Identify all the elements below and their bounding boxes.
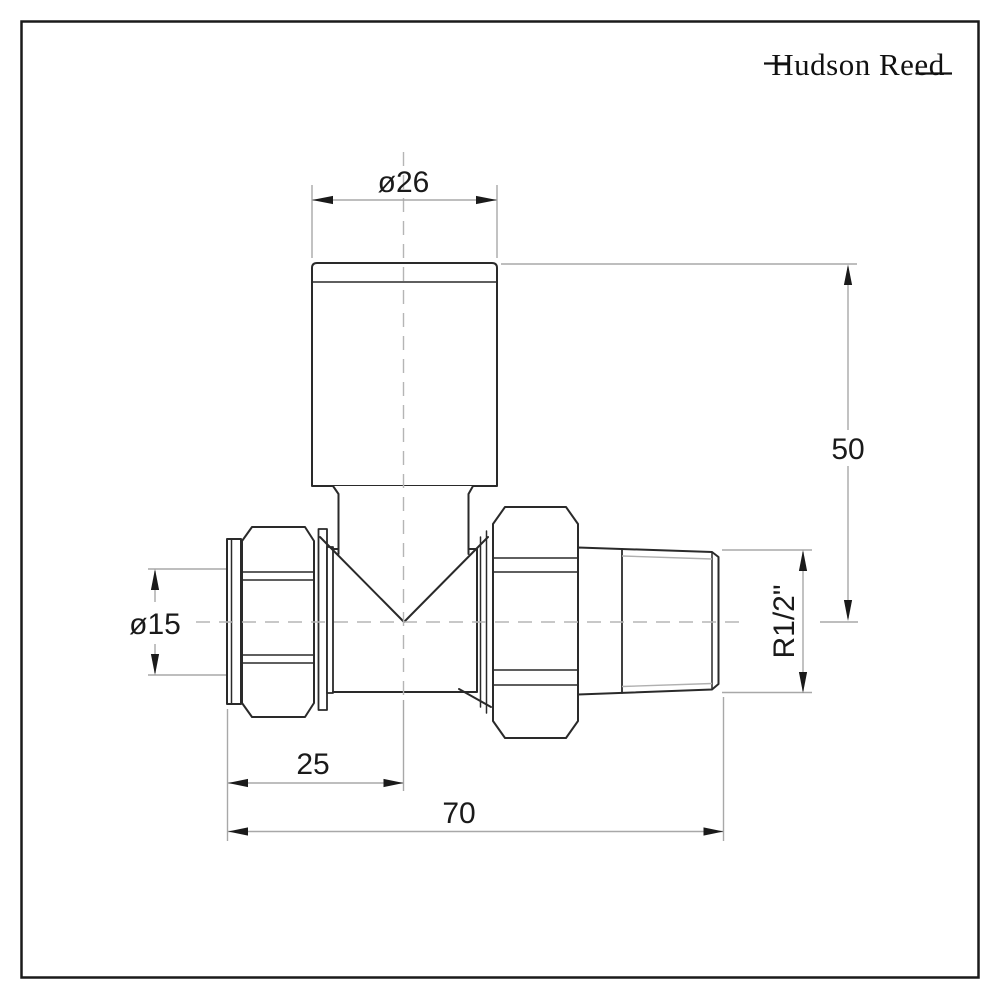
dimension-label: ø26 bbox=[378, 166, 430, 199]
arrowhead-top bbox=[151, 569, 159, 590]
dimension-label: R1/2" bbox=[768, 584, 801, 658]
dimension-label: 25 bbox=[296, 748, 329, 781]
body-flange-ring bbox=[327, 547, 333, 693]
arrowhead-bottom bbox=[151, 654, 159, 675]
arrowhead-right bbox=[384, 779, 404, 787]
dimension-label: 70 bbox=[442, 797, 475, 830]
arrowhead-left bbox=[312, 196, 333, 204]
dimension-label: ø15 bbox=[129, 608, 181, 641]
dimension-label: 50 bbox=[831, 433, 864, 466]
arrowhead-left bbox=[228, 779, 248, 787]
drawing-page: Hudson Reed bbox=[0, 0, 1000, 1000]
arrowhead-right bbox=[704, 827, 724, 835]
male-thread bbox=[578, 548, 719, 695]
arrowhead-right bbox=[476, 196, 497, 204]
drawing-border bbox=[22, 22, 979, 978]
arrowhead-left bbox=[228, 827, 248, 835]
arrowhead-top bbox=[844, 265, 852, 286]
arrowhead-bottom bbox=[799, 672, 807, 693]
arrowhead-bottom bbox=[844, 600, 852, 621]
dimension-inlet-length: 25 bbox=[228, 700, 404, 841]
nut-collar-ring bbox=[319, 529, 328, 710]
dimension-head-diameter: ø26 bbox=[312, 166, 497, 258]
valve-technical-drawing: Hudson Reed bbox=[0, 0, 1000, 1000]
dimension-inlet-diameter: ø15 bbox=[129, 569, 226, 675]
valve-head bbox=[312, 263, 497, 556]
thread-outline bbox=[578, 548, 719, 695]
brand-logo: Hudson Reed bbox=[764, 47, 952, 82]
brand-logo-text: Hudson Reed bbox=[771, 47, 944, 82]
head-outline bbox=[312, 263, 497, 486]
arrowhead-top bbox=[799, 550, 807, 571]
